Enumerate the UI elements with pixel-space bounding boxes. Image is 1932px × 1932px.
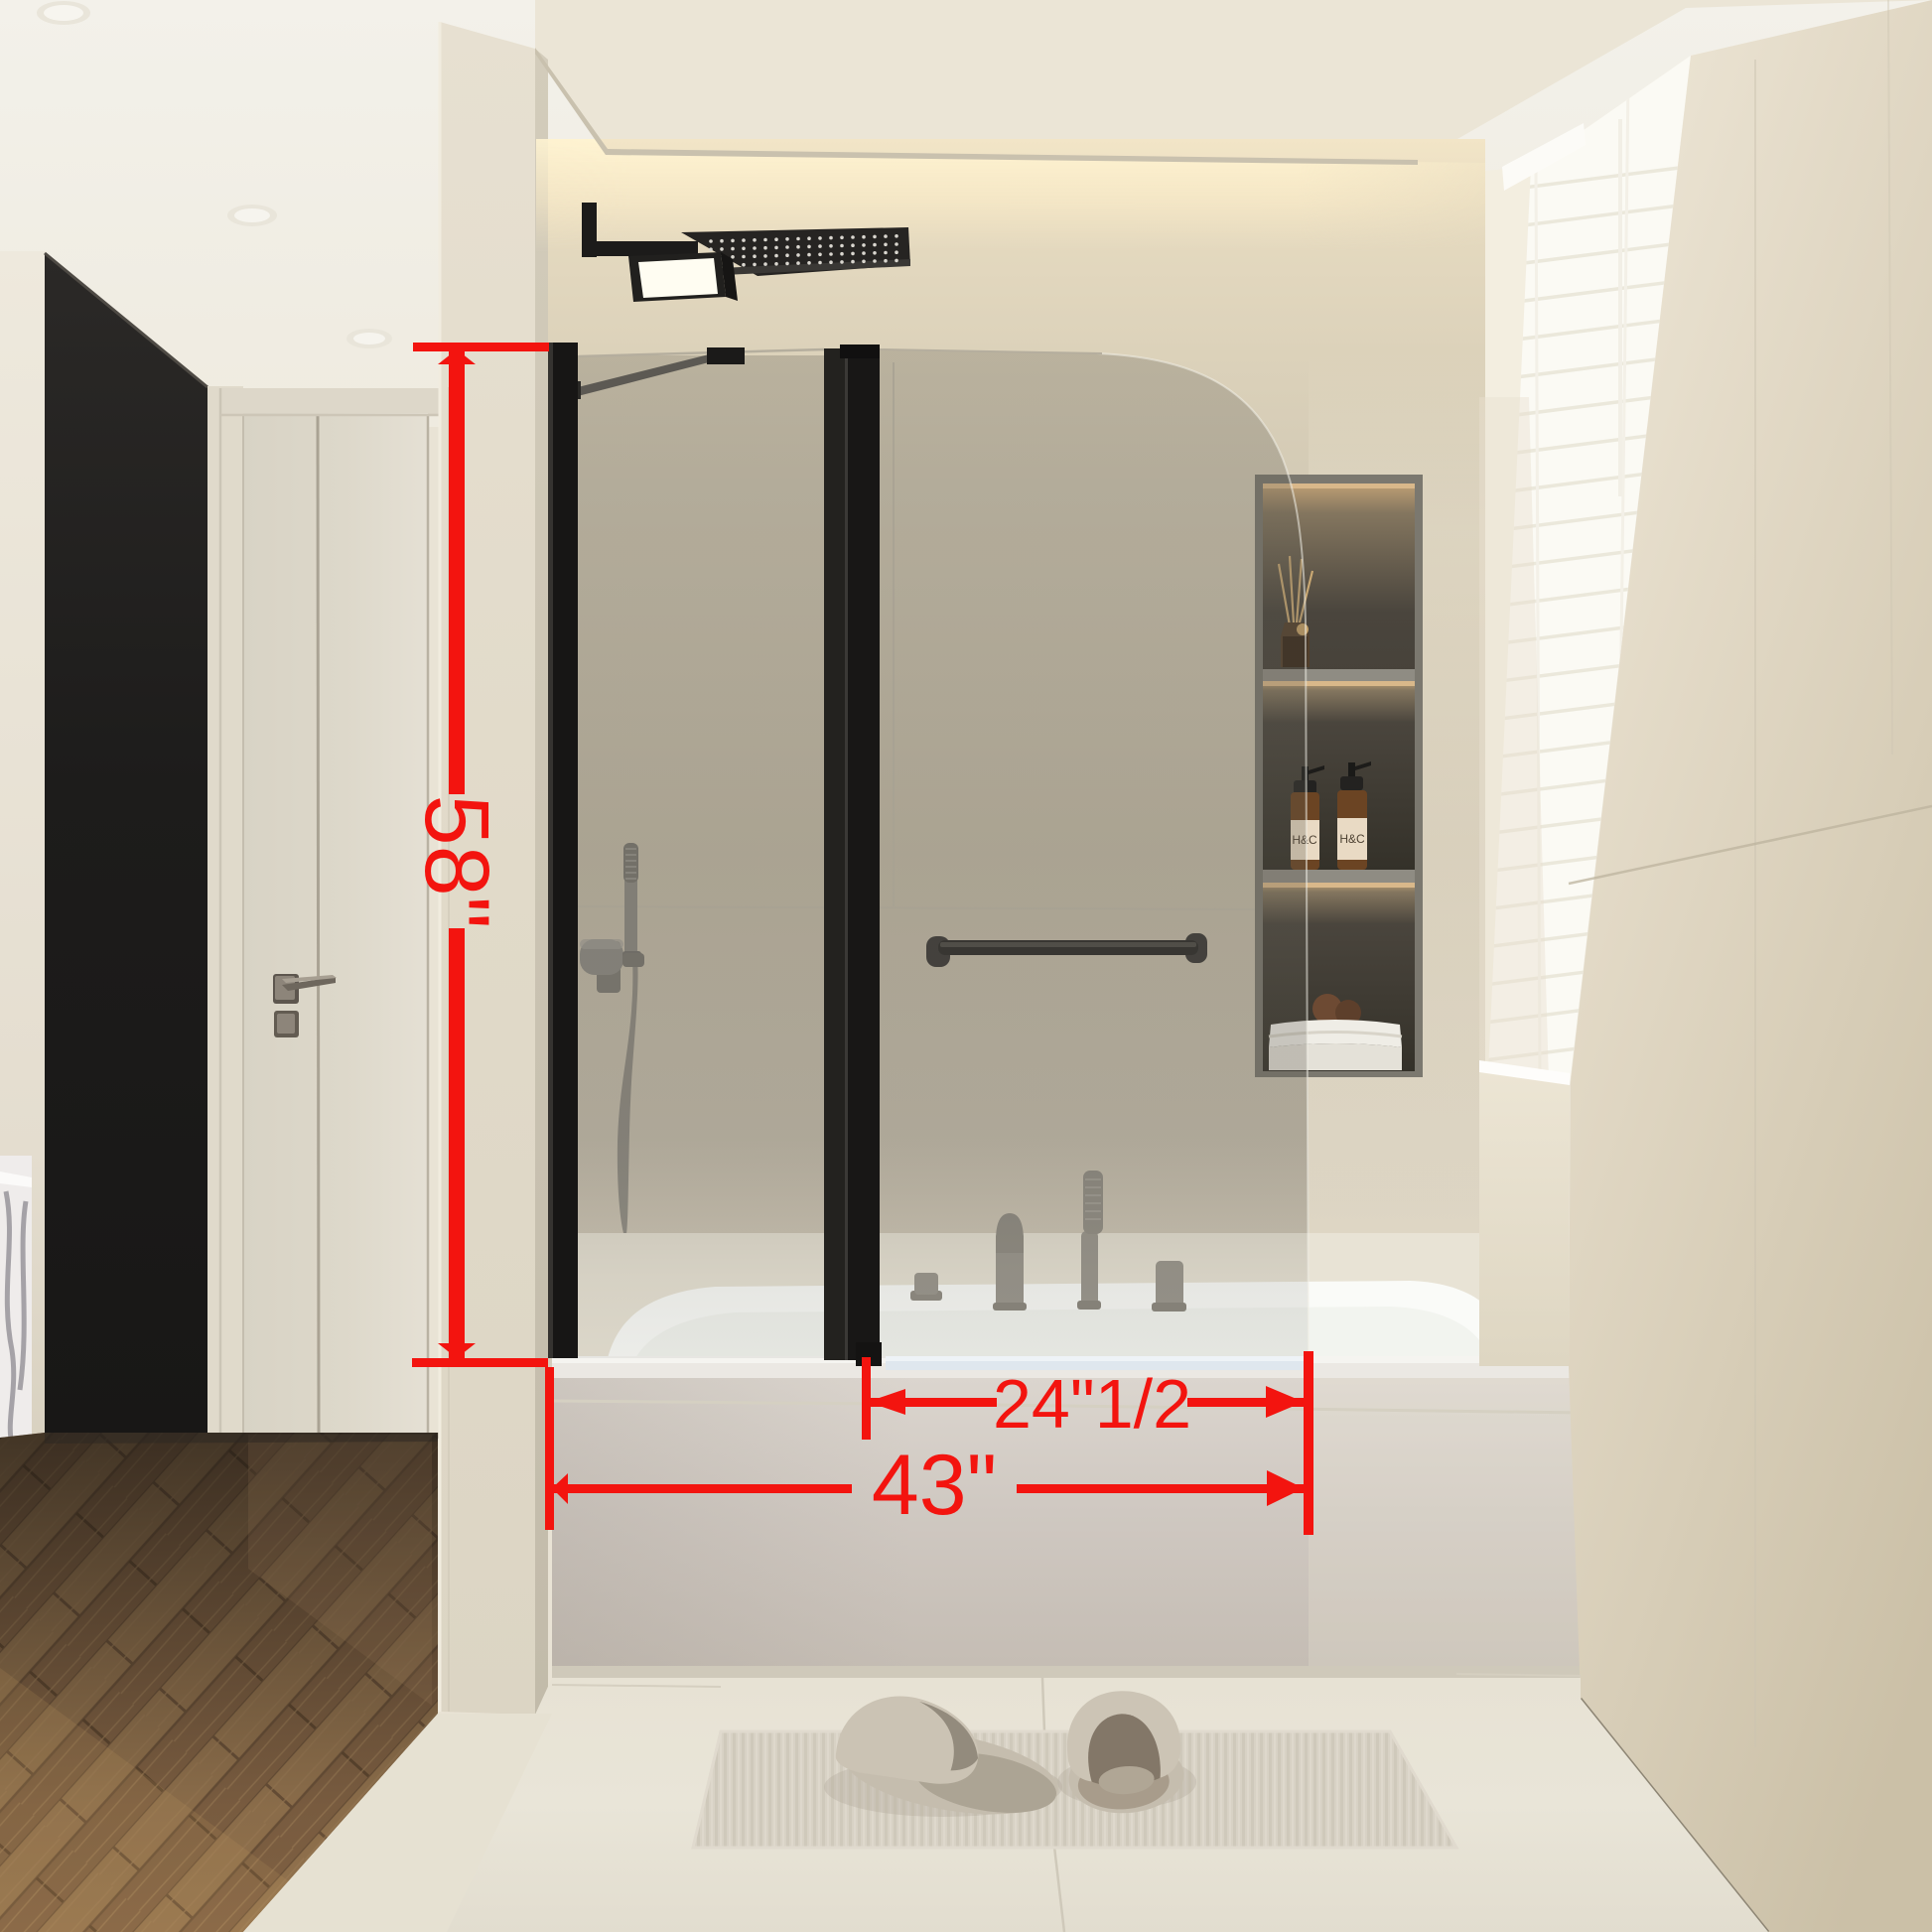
- svg-text:24"1/2: 24"1/2: [993, 1365, 1191, 1443]
- svg-text:H&C: H&C: [1339, 832, 1365, 846]
- svg-text:58": 58": [406, 795, 507, 929]
- svg-text:43": 43": [872, 1438, 997, 1533]
